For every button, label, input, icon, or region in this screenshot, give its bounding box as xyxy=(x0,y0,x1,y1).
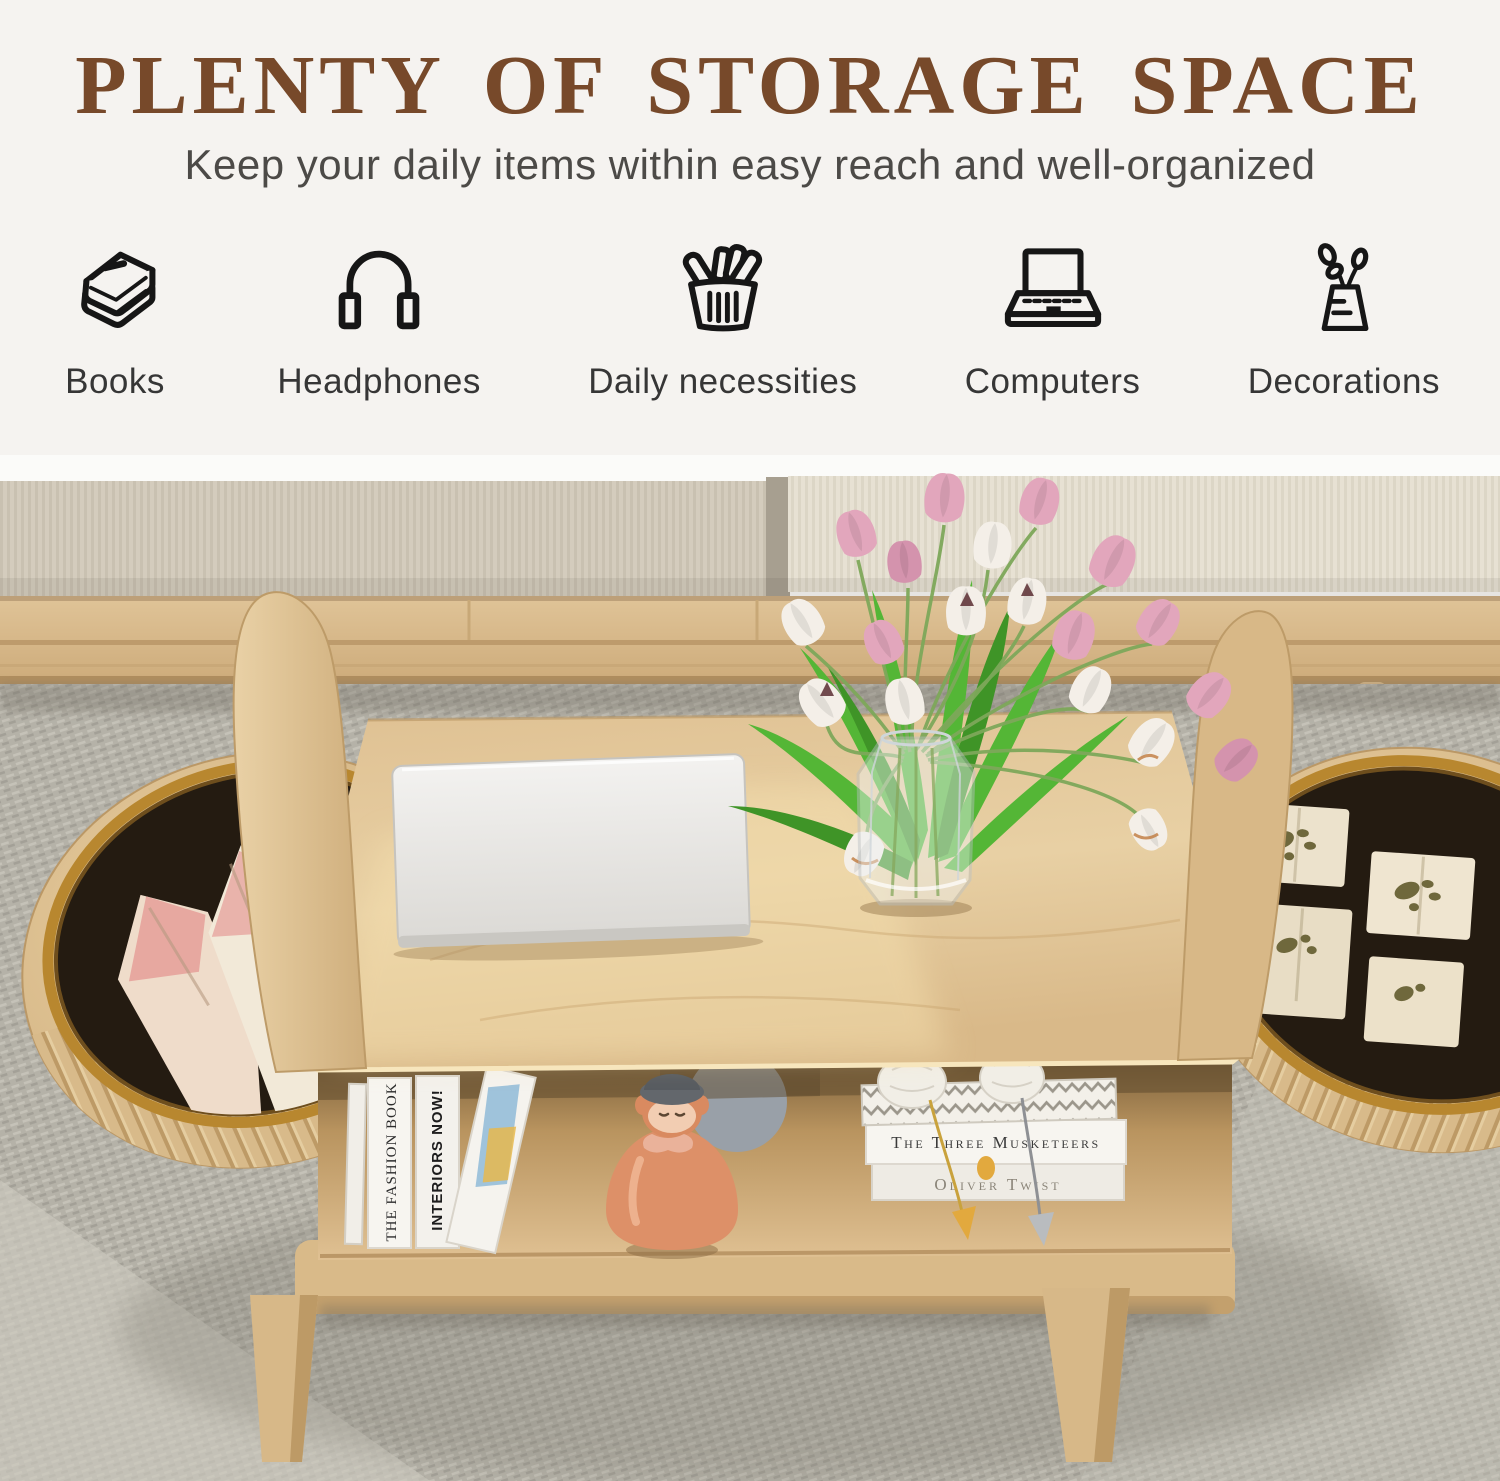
product-photo: THE FASHION BOOK INTERIORS NOW! xyxy=(0,455,1500,1481)
headphones-icon xyxy=(323,234,435,346)
book-title-three-musketeers: The Three Musketeers xyxy=(891,1133,1100,1152)
page-subtitle: Keep your daily items within easy reach … xyxy=(0,142,1500,188)
feature-daily-necessities: Daily necessities xyxy=(588,234,857,402)
feature-books: Books xyxy=(60,234,170,402)
feature-label-daily-necessities: Daily necessities xyxy=(588,362,857,402)
feature-computers: Computers xyxy=(965,234,1141,402)
header: PLENTY OF STORAGE SPACE Keep your daily … xyxy=(0,0,1500,455)
vase-icon xyxy=(1292,234,1396,346)
feature-label-headphones: Headphones xyxy=(277,362,481,402)
basket-icon xyxy=(668,234,778,346)
feature-label-decorations: Decorations xyxy=(1248,362,1440,402)
feature-label-books: Books xyxy=(65,362,165,402)
feature-label-computers: Computers xyxy=(965,362,1141,402)
feature-decorations: Decorations xyxy=(1248,234,1440,402)
feature-headphones: Headphones xyxy=(277,234,481,402)
feature-row: Books Headphones xyxy=(0,234,1500,402)
book-spine-interiors: INTERIORS NOW! xyxy=(429,1089,446,1231)
book-spine-fashion: THE FASHION BOOK xyxy=(384,1082,400,1241)
glass-vase xyxy=(858,731,974,917)
books-icon xyxy=(60,234,170,346)
laptop xyxy=(387,753,764,965)
page-title: PLENTY OF STORAGE SPACE xyxy=(0,44,1500,128)
laptop-icon xyxy=(994,234,1112,346)
